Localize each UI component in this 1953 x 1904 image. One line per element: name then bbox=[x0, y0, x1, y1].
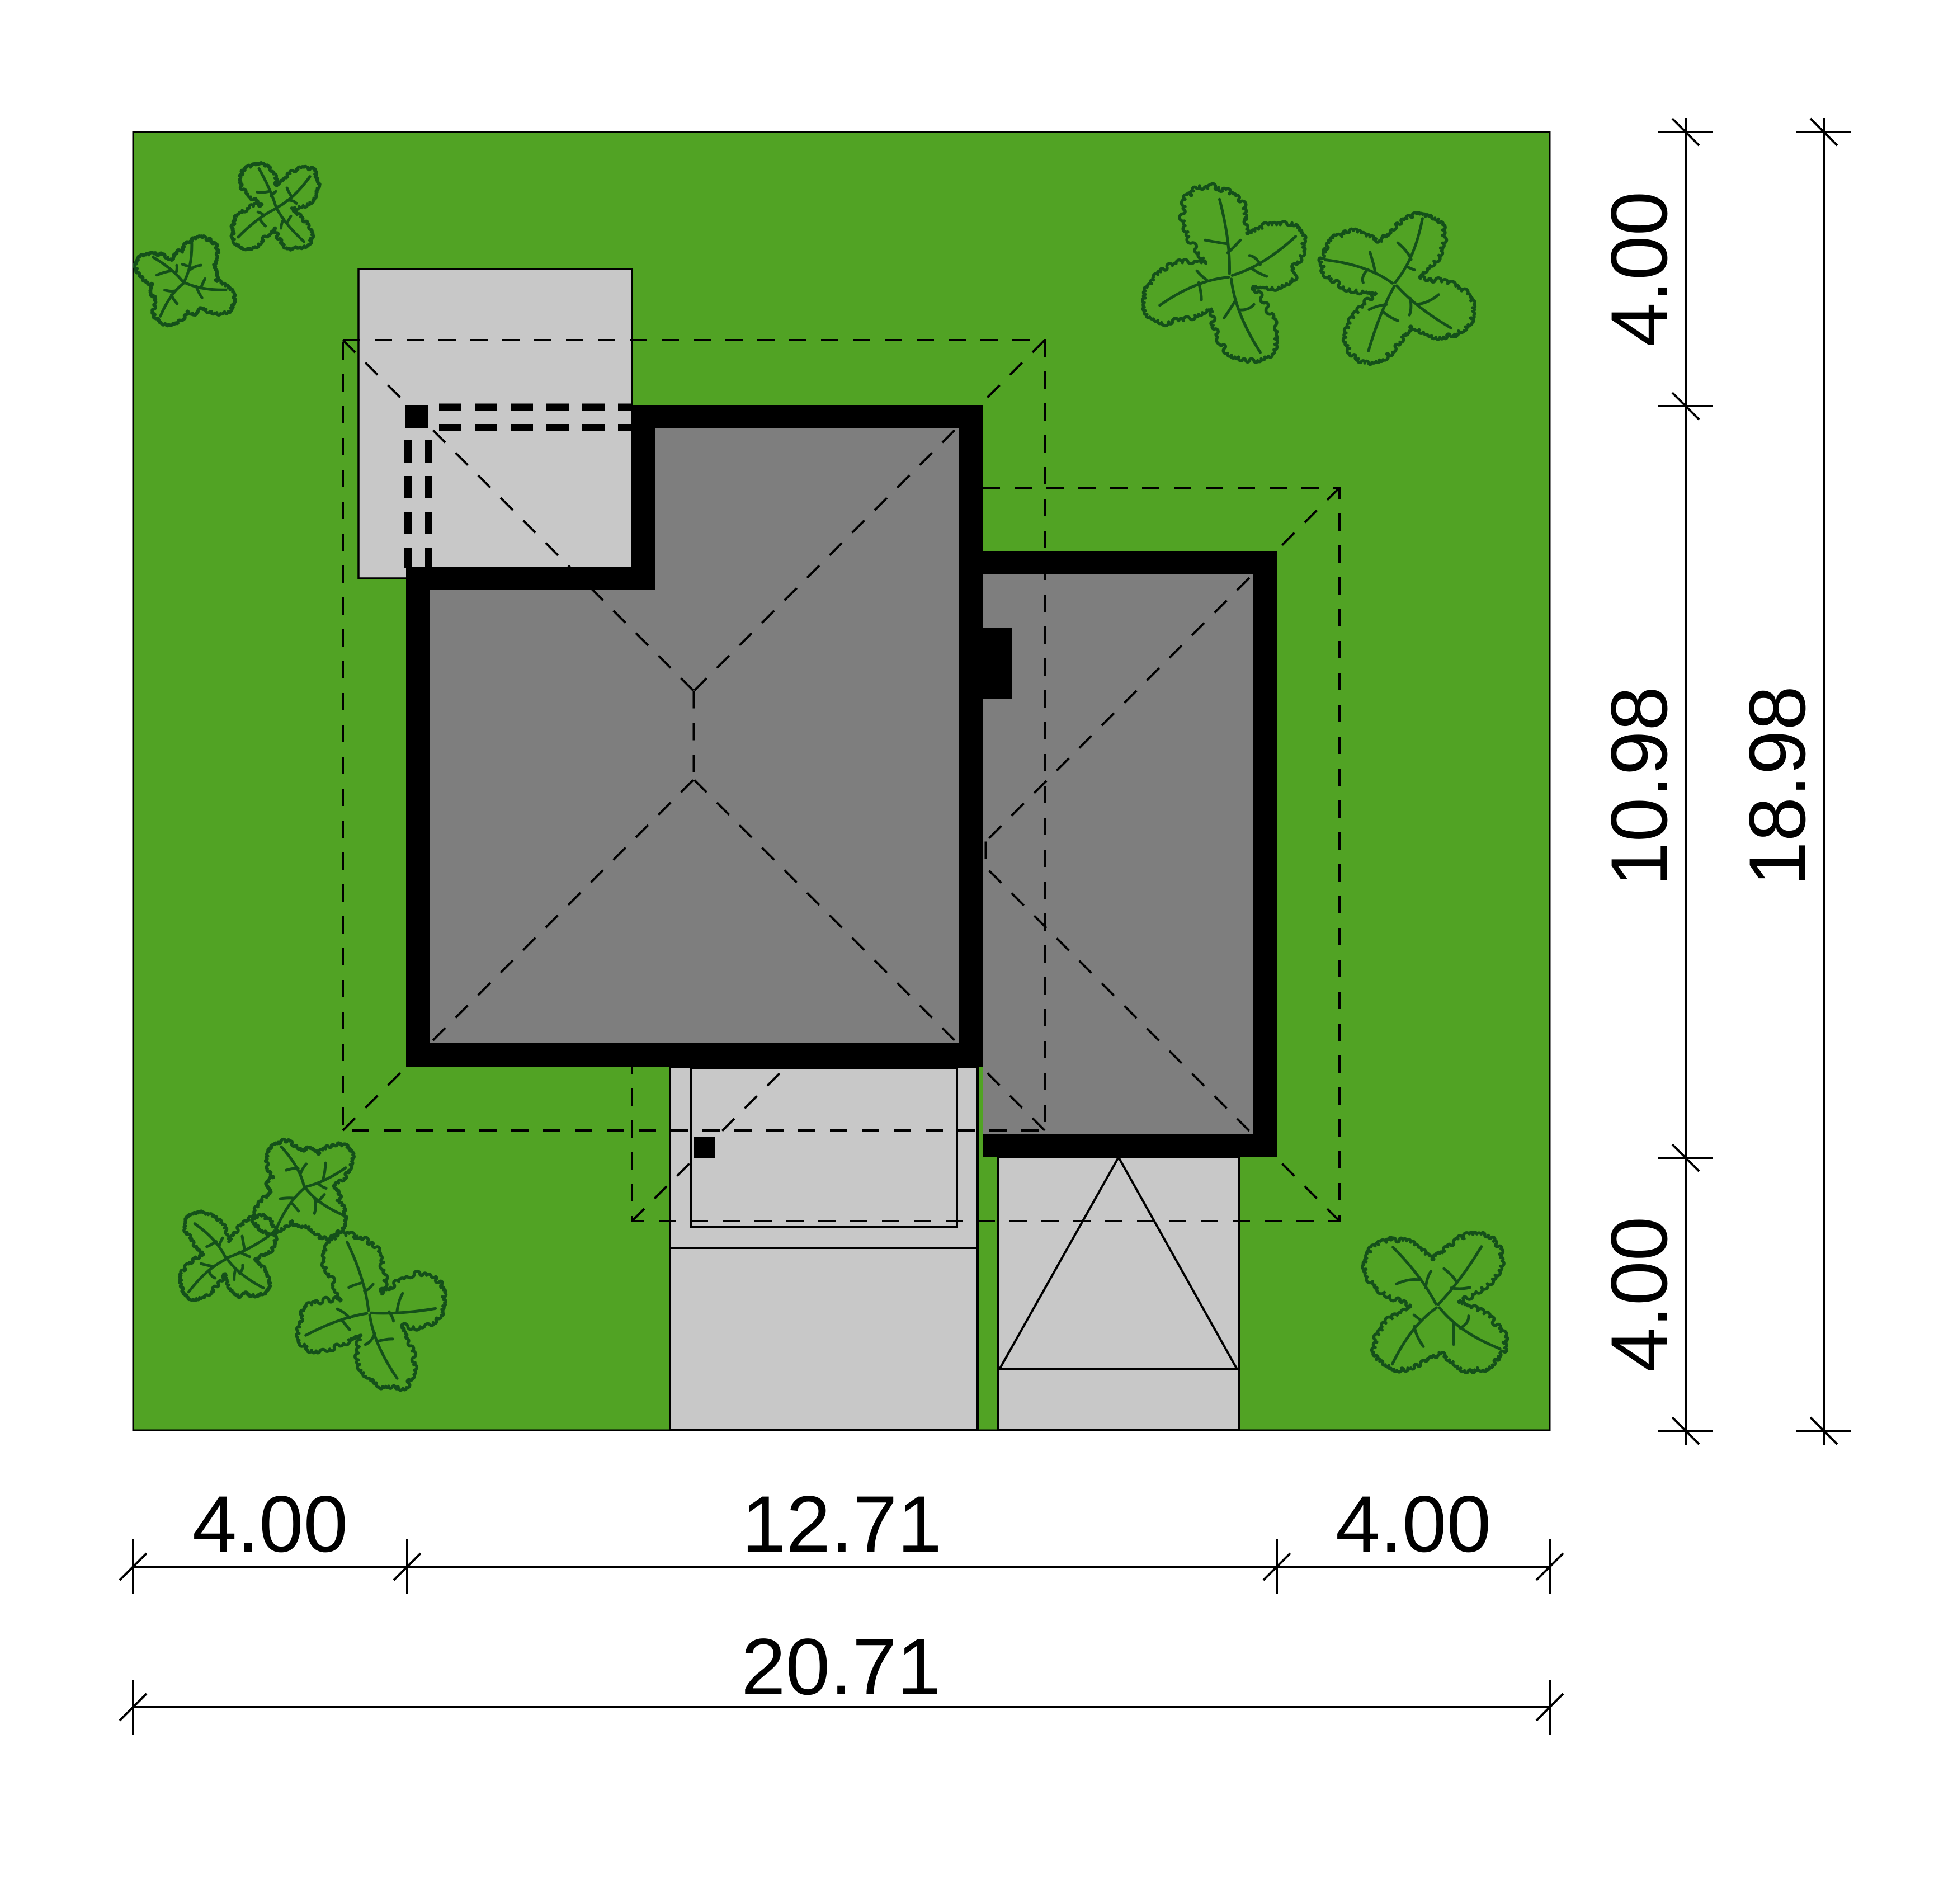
svg-text:10.98: 10.98 bbox=[1595, 686, 1684, 887]
svg-text:4.00: 4.00 bbox=[192, 1480, 348, 1569]
svg-text:12.71: 12.71 bbox=[742, 1480, 942, 1569]
svg-text:4.00: 4.00 bbox=[1595, 1217, 1684, 1372]
svg-text:20.71: 20.71 bbox=[741, 1623, 941, 1712]
svg-text:18.98: 18.98 bbox=[1733, 686, 1822, 886]
svg-text:4.00: 4.00 bbox=[1595, 191, 1684, 347]
svg-text:4.00: 4.00 bbox=[1336, 1480, 1491, 1569]
